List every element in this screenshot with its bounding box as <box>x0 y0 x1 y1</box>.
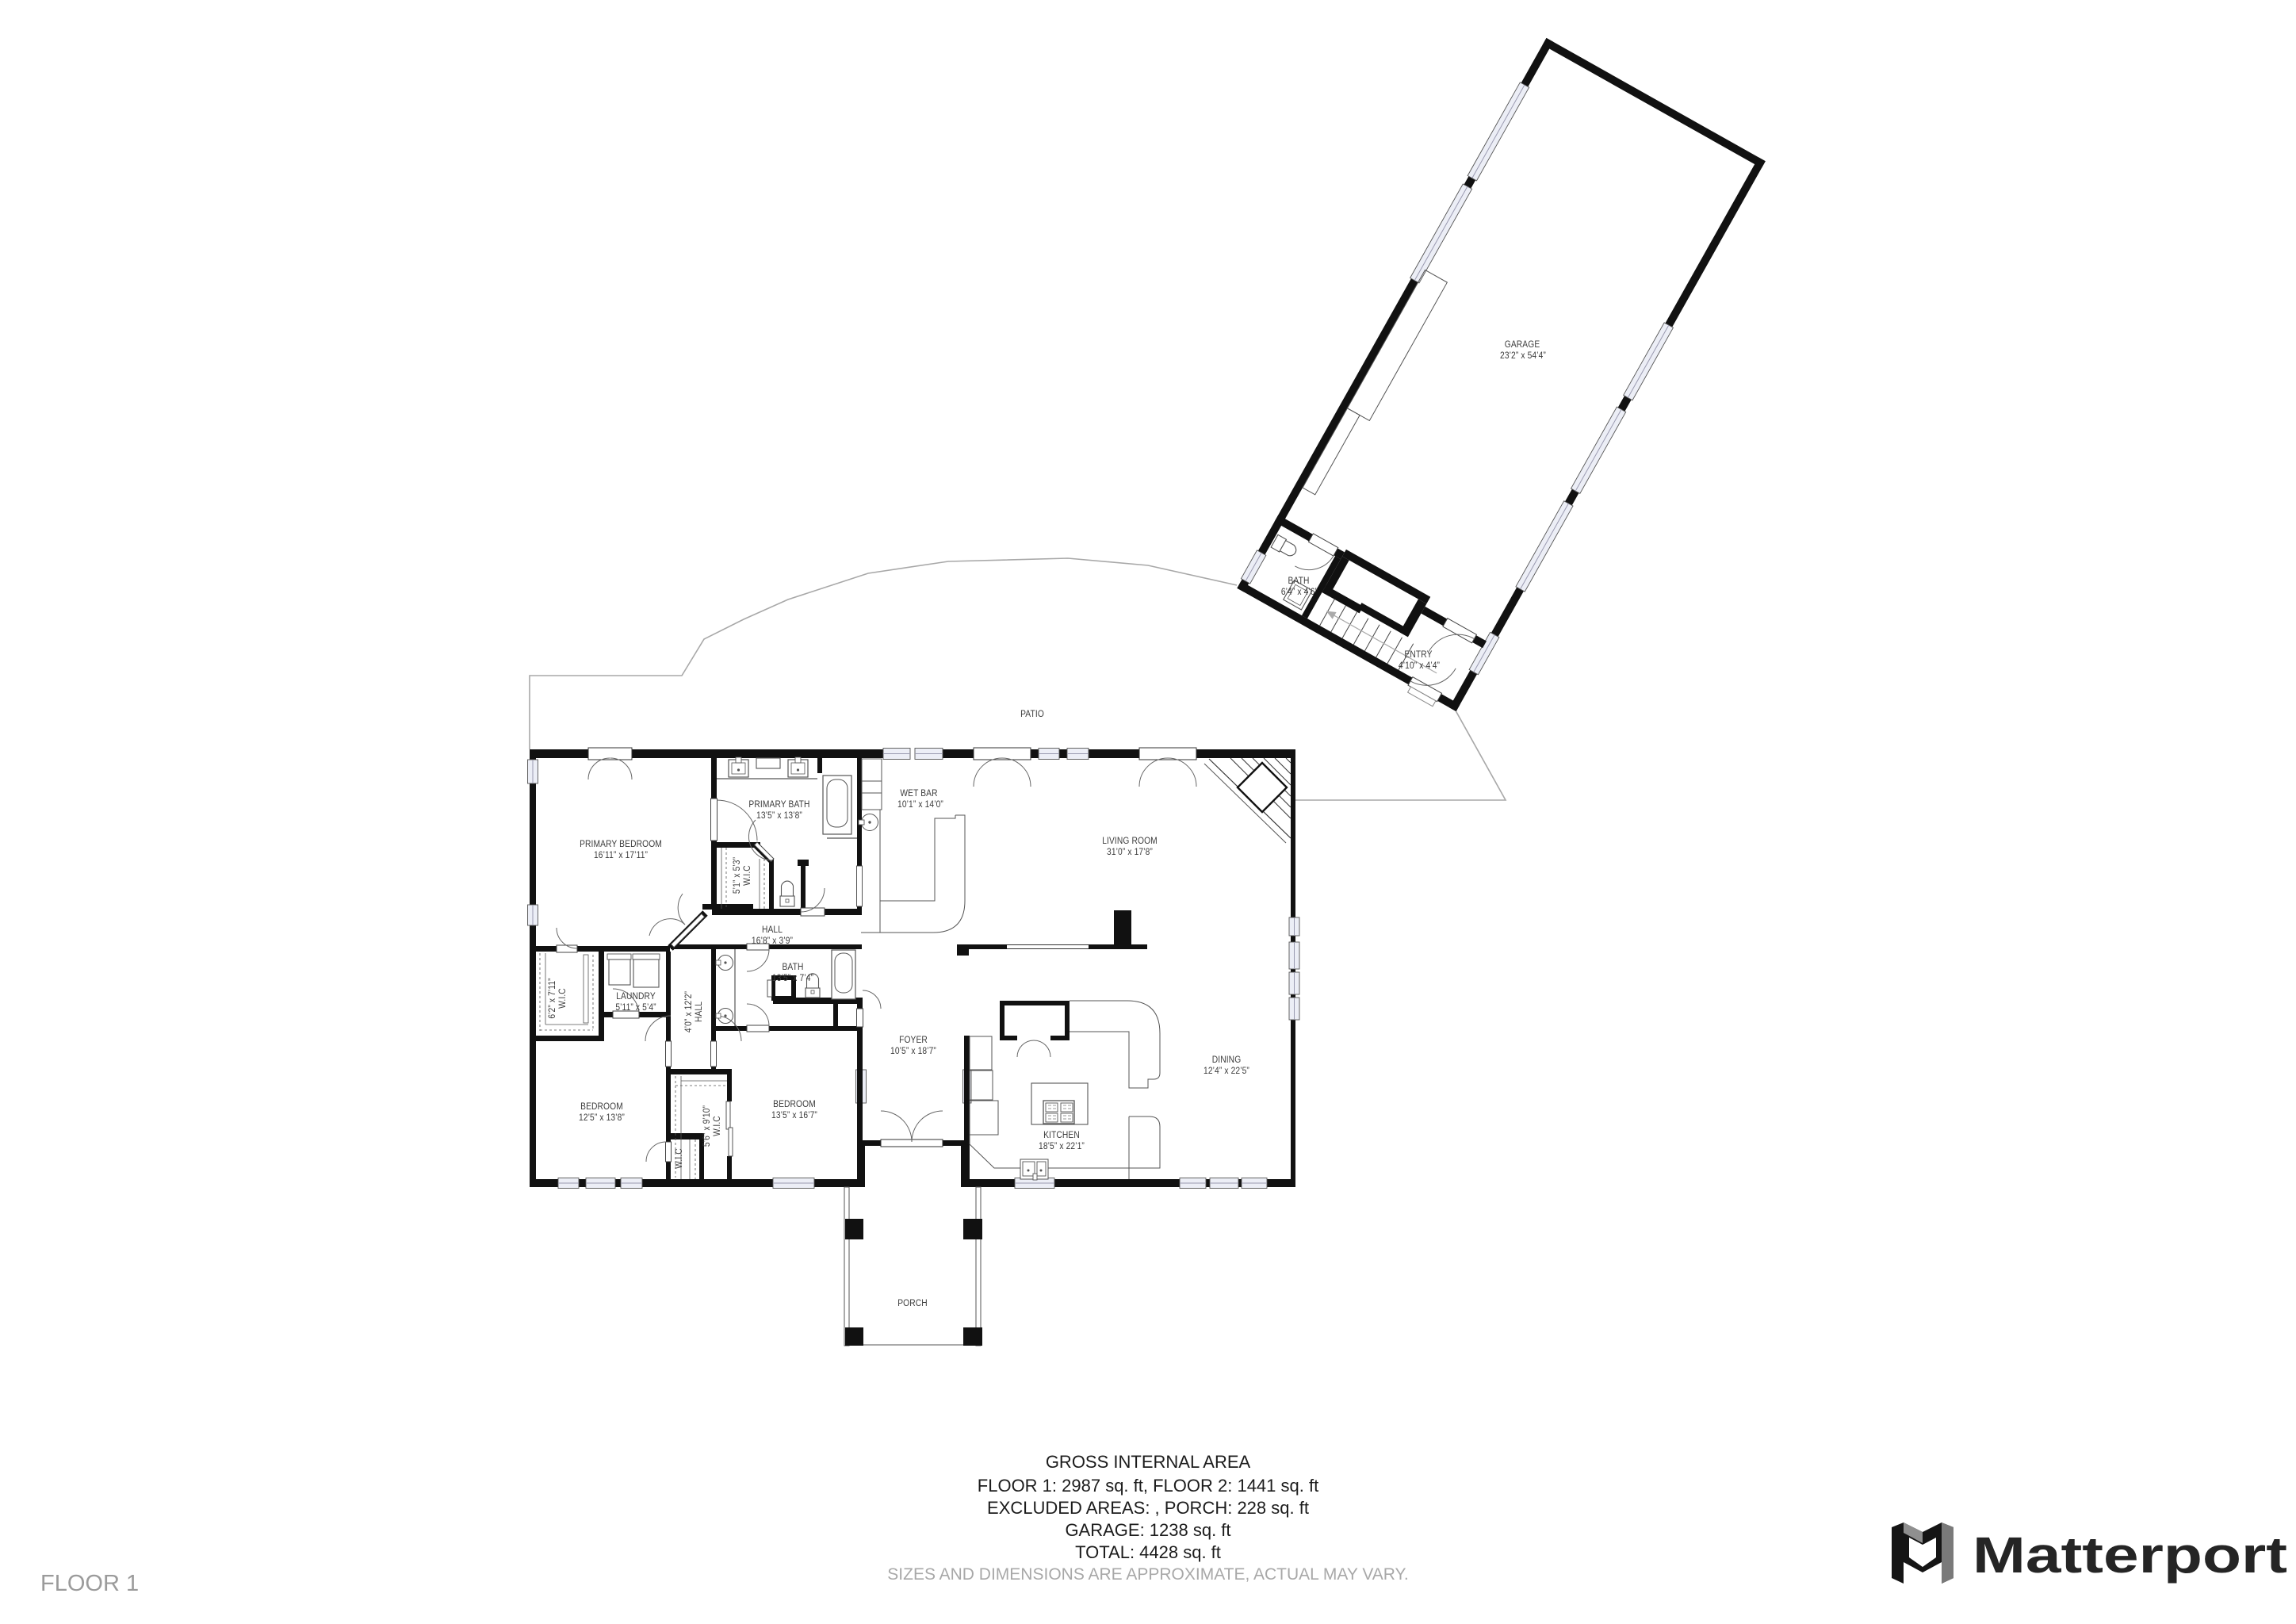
svg-text:LAUNDRY: LAUNDRY <box>616 991 656 1002</box>
svg-text:EXCLUDED AREAS: , PORCH: 228 s: EXCLUDED AREAS: , PORCH: 228 sq. ft <box>987 1498 1309 1518</box>
svg-text:HALL: HALL <box>694 1002 704 1022</box>
svg-text:BEDROOM: BEDROOM <box>773 1099 816 1109</box>
svg-text:GARAGE: GARAGE <box>1505 339 1540 350</box>
svg-text:PRIMARY BATH: PRIMARY BATH <box>748 799 809 810</box>
svg-text:Matterport: Matterport <box>1973 1526 2287 1584</box>
svg-text:HALL: HALL <box>762 925 783 935</box>
svg-text:4’0” x 12’2”: 4’0” x 12’2” <box>683 991 694 1032</box>
svg-text:W.I.C: W.I.C <box>674 1148 684 1169</box>
svg-text:BEDROOM: BEDROOM <box>580 1101 623 1112</box>
svg-text:16’11” x 17’11”: 16’11” x 17’11” <box>594 850 648 860</box>
svg-text:FOYER: FOYER <box>899 1035 928 1045</box>
svg-text:31’0” x 17’8”: 31’0” x 17’8” <box>1107 847 1153 857</box>
svg-text:13’5” x 7’4”: 13’5” x 7’4” <box>772 973 813 983</box>
svg-text:16’8” x 3’9”: 16’8” x 3’9” <box>752 936 793 946</box>
svg-text:BATH: BATH <box>782 962 803 972</box>
svg-text:PORCH: PORCH <box>897 1298 928 1308</box>
svg-text:23’2” x 54’4”: 23’2” x 54’4” <box>1500 350 1546 361</box>
svg-text:GROSS INTERNAL AREA: GROSS INTERNAL AREA <box>1046 1452 1251 1472</box>
svg-text:LIVING ROOM: LIVING ROOM <box>1102 836 1158 846</box>
svg-text:W.I.C: W.I.C <box>742 865 752 886</box>
svg-text:W.I.C: W.I.C <box>712 1116 722 1136</box>
svg-text:5’11” x 5’4”: 5’11” x 5’4” <box>615 1002 656 1013</box>
svg-text:18’5” x 22’1”: 18’5” x 22’1” <box>1039 1141 1085 1151</box>
svg-text:13’5” x 16’7”: 13’5” x 16’7” <box>771 1110 817 1120</box>
svg-text:12’4” x 22’5”: 12’4” x 22’5” <box>1203 1066 1249 1076</box>
svg-text:FLOOR 1: 2987 sq. ft, FLOOR 2:: FLOOR 1: 2987 sq. ft, FLOOR 2: 1441 sq. … <box>978 1476 1318 1496</box>
svg-text:4’10” x 4’4”: 4’10” x 4’4” <box>1399 661 1440 671</box>
svg-text:12’5” x 13’8”: 12’5” x 13’8” <box>579 1113 625 1123</box>
svg-text:5’6” x 9’10”: 5’6” x 9’10” <box>702 1105 712 1147</box>
svg-text:FLOOR 1: FLOOR 1 <box>40 1571 139 1596</box>
svg-text:GARAGE: 1238 sq. ft: GARAGE: 1238 sq. ft <box>1065 1520 1230 1540</box>
svg-text:10’1” x 14’0”: 10’1” x 14’0” <box>897 799 943 810</box>
svg-text:10’5” x 18’7”: 10’5” x 18’7” <box>890 1046 936 1056</box>
svg-text:6’4” x 4’6”: 6’4” x 4’6” <box>1281 587 1318 597</box>
svg-text:WET BAR: WET BAR <box>900 788 937 799</box>
svg-text:SIZES AND DIMENSIONS ARE APPRO: SIZES AND DIMENSIONS ARE APPROXIMATE, AC… <box>887 1565 1408 1584</box>
svg-text:PATIO: PATIO <box>1020 709 1044 719</box>
svg-text:PRIMARY BEDROOM: PRIMARY BEDROOM <box>580 839 662 849</box>
svg-text:TOTAL: 4428 sq. ft: TOTAL: 4428 sq. ft <box>1075 1542 1221 1562</box>
svg-text:DINING: DINING <box>1212 1055 1242 1065</box>
svg-text:6’2” x 7’11”: 6’2” x 7’11” <box>547 978 557 1018</box>
svg-text:5’1” x 5’3”: 5’1” x 5’3” <box>732 857 742 894</box>
svg-text:W.I.C: W.I.C <box>557 988 568 1009</box>
svg-text:BATH: BATH <box>1288 576 1309 586</box>
svg-text:ENTRY: ENTRY <box>1404 649 1432 660</box>
svg-text:KITCHEN: KITCHEN <box>1043 1130 1080 1140</box>
svg-text:13’5” x 13’8”: 13’5” x 13’8” <box>756 810 802 821</box>
